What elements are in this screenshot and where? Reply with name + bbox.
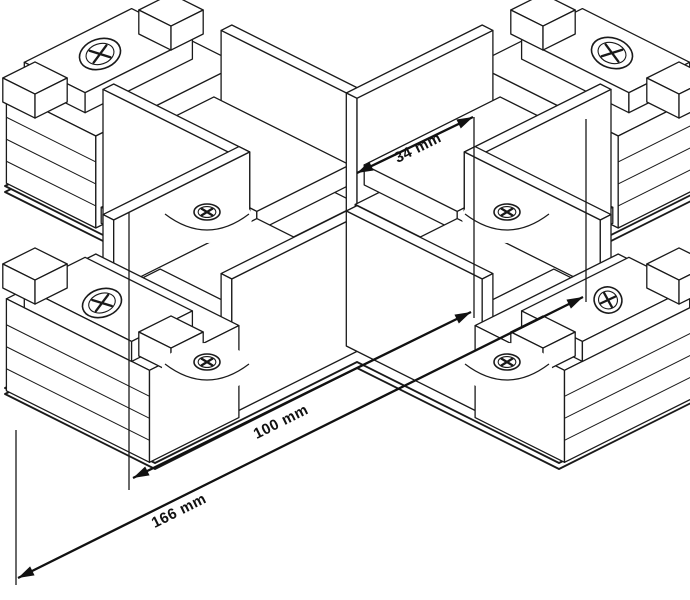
x-connector-technical-drawing: 34 mm100 mm166 mm (0, 0, 690, 600)
cover-screw-se-icon (494, 354, 520, 370)
cover-screw-nw-icon (194, 204, 220, 220)
dimension-label: 166 mm (149, 490, 209, 531)
dimension-arrowhead-icon (18, 566, 35, 578)
technical-drawing-page: 34 mm100 mm166 mm (0, 0, 690, 600)
dimension-arrowhead-icon (133, 466, 150, 478)
cover-screw-sw-icon (194, 354, 220, 370)
cover-screw-ne-icon (494, 204, 520, 220)
